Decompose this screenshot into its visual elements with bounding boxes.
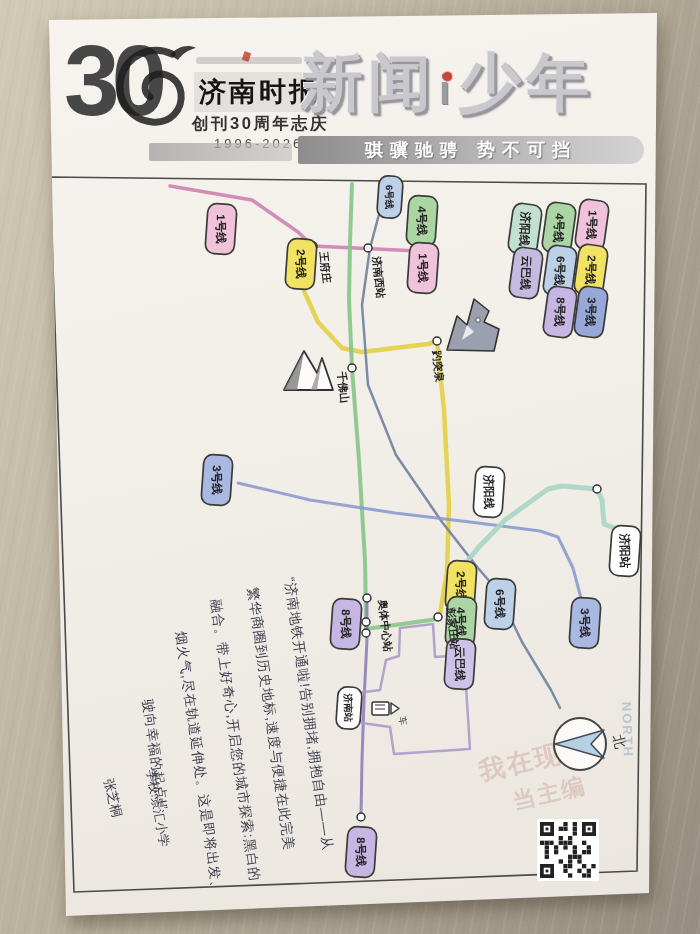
line-badge-8号线: 8号线 [542,285,578,339]
station-dot [433,337,441,345]
svg-text:2号线: 2号线 [295,249,308,279]
line-badge-3号线: 3号线 [201,454,233,506]
svg-text:8号线: 8号线 [340,609,353,639]
mountain-icon-spring [447,299,499,351]
svg-text:4号线: 4号线 [416,206,429,236]
svg-text:1号线: 1号线 [215,214,228,244]
svg-text:济阳线: 济阳线 [482,474,496,510]
svg-text:1号线: 1号线 [585,210,599,240]
line-badge-济阳站: 济阳站 [609,525,641,577]
line-badge-6号线: 6号线 [377,175,404,219]
mountain-icon-qianfoshan [284,351,333,390]
station-label: 济南西站 [371,255,387,300]
svg-text:6号线: 6号线 [553,256,567,286]
svg-text:济南站: 济南站 [343,693,355,723]
svg-text:济阳站: 济阳站 [618,533,632,569]
svg-text:云巴线: 云巴线 [519,255,533,291]
station-dot [593,485,601,493]
line-badge-3号线: 3号线 [569,597,601,649]
station-dot [362,618,370,626]
svg-text:3号线: 3号线 [579,608,592,638]
metro-line-2号线 [304,291,449,614]
line-badge-2号线: 2号线 [285,238,317,290]
line-badge-1号线: 1号线 [574,198,610,252]
station-dot [357,813,365,821]
station-dot [348,364,356,372]
line-badge-济南站: 济南站 [336,686,363,730]
line-badge-8号线: 8号线 [330,598,362,650]
station-dot [363,594,371,602]
station-label: 千佛山 [336,371,351,404]
paper-sheet: 30 济南时报 创刊30周年志庆 1996-2026 新闻 i 少年 骐骥驰骋 … [0,0,700,934]
svg-text:6号线: 6号线 [384,185,395,210]
svg-text:8号线: 8号线 [355,837,368,867]
line-badge-3号线: 3号线 [573,285,609,339]
line-badge-6号线: 6号线 [484,578,516,630]
svg-text:2号线: 2号线 [584,255,598,285]
paper-shadow: 30 济南时报 创刊30周年志庆 1996-2026 新闻 i 少年 骐骥驰骋 … [0,0,700,934]
line-badge-8号线: 8号线 [345,826,377,878]
station-dot [364,244,372,252]
station-dot [434,613,442,621]
station-dot [362,629,370,637]
station-label: 趵突泉 [431,350,446,383]
svg-text:4号线: 4号线 [552,213,566,243]
svg-text:云巴线: 云巴线 [454,647,467,682]
train-icon [372,702,399,715]
svg-text:6号线: 6号线 [494,589,507,619]
metro-map: 1号线2号线6号线4号线1号线3号线济阳线8号线2号线4号线云巴线6号线3号线济… [0,0,700,934]
desk-background: 30 济南时报 创刊30周年志庆 1996-2026 新闻 i 少年 骐骥驰骋 … [0,0,700,934]
line-badge-云巴线: 云巴线 [508,246,544,300]
svg-text:3号线: 3号线 [584,297,598,327]
station-label: 王府庄 [318,251,333,284]
line-badge-济阳线: 济阳线 [473,466,505,518]
signature-name: 张芝桐 [101,777,125,818]
train-icon-label: 车 [397,716,408,727]
line-badge-1号线: 1号线 [407,242,439,294]
svg-text:3号线: 3号线 [211,465,224,495]
svg-text:1号线: 1号线 [417,253,430,283]
north-watermark: NORTH [619,702,636,759]
line-badge-1号线: 1号线 [205,203,237,255]
svg-text:8号线: 8号线 [553,297,567,327]
handwritten-note-line: 烟火气,尽在轨道延伸处。这是即将出发、 [173,629,225,895]
line-badge-4号线: 4号线 [406,195,438,247]
